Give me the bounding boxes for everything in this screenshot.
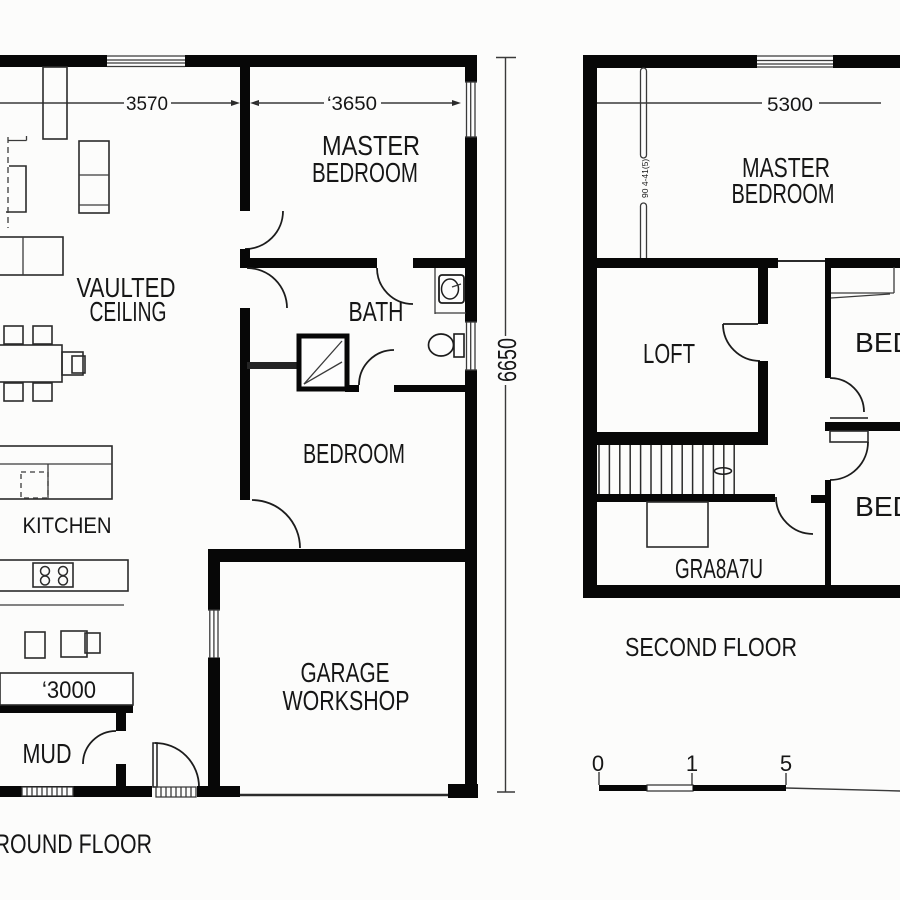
svg-text:LOFT: LOFT bbox=[643, 338, 695, 369]
svg-text:5300: 5300 bbox=[767, 95, 813, 116]
svg-text:GROUND FLOOR: GROUND FLOOR bbox=[0, 829, 152, 859]
svg-text:‘3650: ‘3650 bbox=[327, 94, 377, 115]
svg-text:‘3000: ‘3000 bbox=[42, 677, 96, 704]
svg-text:3570: 3570 bbox=[126, 94, 168, 115]
svg-text:BED: BED bbox=[855, 327, 900, 358]
svg-text:BEDROOM: BEDROOM bbox=[732, 178, 835, 209]
svg-text:GRA8A7U: GRA8A7U bbox=[675, 553, 763, 584]
svg-text:SECOND FLOOR: SECOND FLOOR bbox=[625, 632, 797, 662]
svg-text:0: 0 bbox=[592, 751, 604, 776]
svg-text:KITCHEN: KITCHEN bbox=[23, 513, 112, 538]
svg-text:CEILING: CEILING bbox=[90, 296, 167, 327]
svg-text:GARAGE: GARAGE bbox=[301, 657, 390, 688]
svg-text:90 4-41(5): 90 4-41(5) bbox=[640, 159, 650, 198]
svg-text:BED: BED bbox=[855, 491, 900, 522]
svg-text:WORKSHOP: WORKSHOP bbox=[283, 685, 410, 716]
svg-text:BEDROOM: BEDROOM bbox=[312, 157, 418, 188]
svg-text:MUD: MUD bbox=[23, 738, 72, 769]
svg-text:6650: 6650 bbox=[492, 338, 522, 382]
svg-text:BEDROOM: BEDROOM bbox=[303, 438, 405, 469]
svg-text:1: 1 bbox=[686, 751, 698, 776]
svg-text:5: 5 bbox=[780, 751, 792, 776]
svg-text:BATH: BATH bbox=[349, 296, 404, 327]
